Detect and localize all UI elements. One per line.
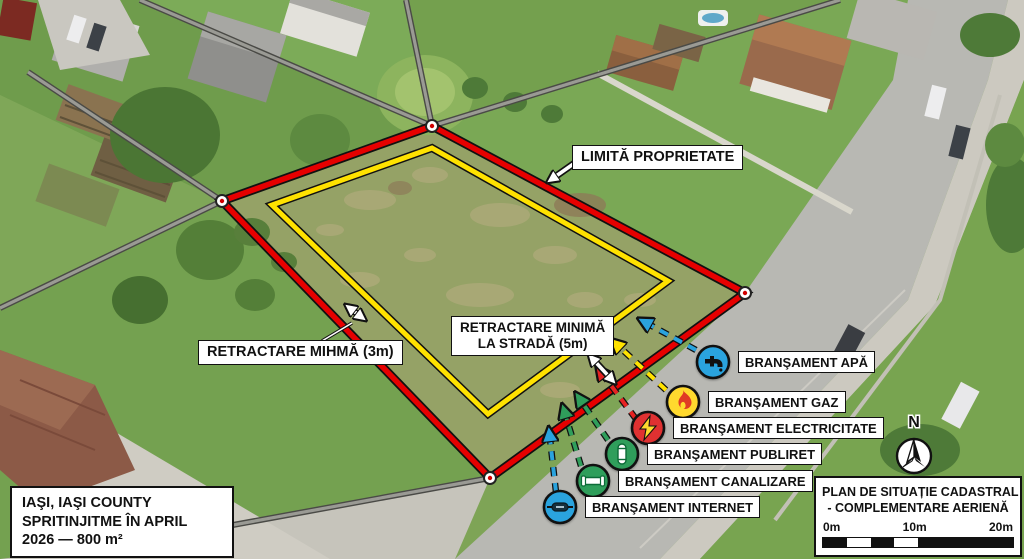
info-line-2: SPRITINJITME ÎN APRIL — [22, 513, 222, 532]
street-setback-line1: RETRACTARE MINIMĂ — [460, 320, 605, 336]
info-line-3: 2026 — 800 m² — [22, 531, 222, 550]
location-info-box: IAŞI, IAŞI COUNTY SPRITINJITME ÎN APRIL … — [10, 486, 234, 558]
utility-row-water: BRANŞAMENT APĂ — [695, 344, 875, 380]
scale-bar — [822, 537, 1014, 548]
side-setback-label: RETRACTARE MIHMĂ (3m) — [198, 340, 403, 365]
scale-label-0: 0m — [823, 520, 840, 536]
utility-label: BRANŞAMENT PUBLIRET — [647, 443, 822, 465]
plan-title-line2: - COMPLEMENTARE AERIENĂ — [822, 500, 1014, 516]
compass-icon: N — [878, 410, 950, 486]
scale-label-10: 10m — [903, 520, 927, 536]
north-arrow: N — [878, 410, 950, 486]
scale-label-20: 20m — [989, 520, 1013, 536]
scale-labels: 0m 10m 20m — [822, 520, 1014, 536]
utility-label: BRANŞAMENT INTERNET — [585, 496, 760, 518]
red-shed — [0, 0, 37, 41]
scale-segment — [823, 538, 847, 547]
plan-title-line1: PLAN DE SITUAȚIE CADASTRAL — [822, 484, 1014, 500]
plan-title-box: PLAN DE SITUAȚIE CADASTRAL - COMPLEMENTA… — [814, 476, 1022, 557]
cable-icon — [542, 489, 578, 525]
scale-segment — [894, 538, 918, 547]
info-line-1: IAŞI, IAŞI COUNTY — [22, 494, 222, 513]
utility-label: BRANŞAMENT APĂ — [738, 351, 875, 373]
scale-segment — [871, 538, 895, 547]
utility-row-internet: BRANŞAMENT INTERNET — [542, 489, 760, 525]
scale-segment — [847, 538, 871, 547]
water-tap-icon — [695, 344, 731, 380]
north-label: N — [908, 414, 920, 431]
pool — [698, 10, 728, 26]
property-limit-label: LIMITĂ PROPRIETATE — [572, 145, 743, 170]
street-setback-label: RETRACTARE MINIMĂ LA STRADĂ (5m) — [451, 316, 614, 356]
bare-soil-patch — [388, 181, 412, 195]
scale-segment — [918, 538, 1013, 547]
cadastral-situation-plan: LIMITĂ PROPRIETATE RETRACTARE MINIMĂ LA … — [0, 0, 1024, 559]
street-setback-line2: LA STRADĂ (5m) — [460, 336, 605, 352]
